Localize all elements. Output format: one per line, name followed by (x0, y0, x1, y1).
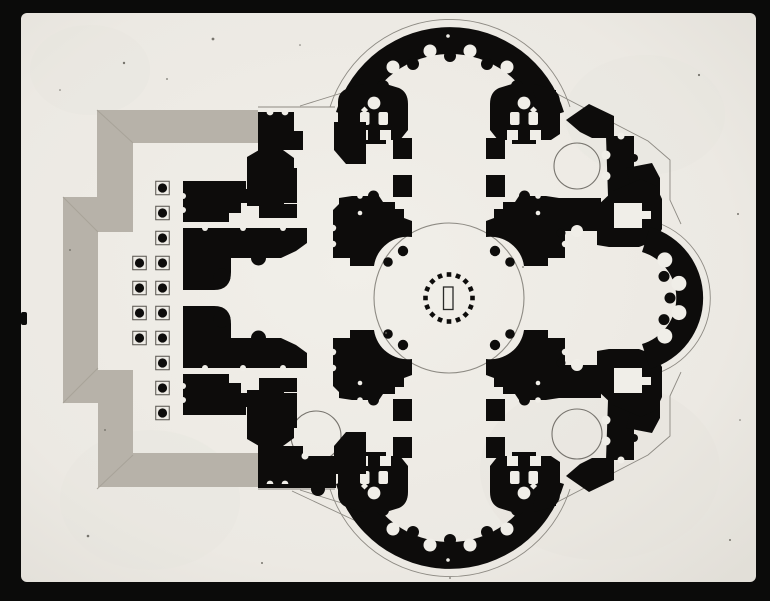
dust-speck (737, 213, 739, 215)
colonnade-column (158, 183, 167, 192)
frame-nick (21, 312, 27, 325)
dust-speck (69, 249, 71, 251)
dust-speck (385, 332, 387, 334)
dust-speck (261, 562, 263, 564)
colonnade-column (135, 333, 144, 342)
colonnade-column (158, 358, 167, 367)
lantern-slide-photo (0, 0, 770, 601)
colonnade-column (158, 333, 167, 342)
dust-speck (166, 78, 168, 80)
colonnade-column (135, 283, 144, 292)
floor-plan-slide (0, 0, 770, 601)
colonnade-column (158, 258, 167, 267)
baldachin-column (447, 272, 452, 277)
dust-speck (739, 419, 741, 421)
dust-speck (299, 44, 301, 46)
dust-speck (59, 89, 61, 91)
dust-speck (104, 429, 106, 431)
colonnade-column (158, 408, 167, 417)
dust-speck (522, 266, 524, 268)
dust-speck (87, 535, 90, 538)
dust-speck (698, 74, 700, 76)
baldachin-column (447, 319, 452, 324)
colonnade-column (135, 258, 144, 267)
dust-speck (449, 577, 451, 579)
baldachin-column (470, 296, 475, 301)
colonnade-column (158, 283, 167, 292)
dust-speck (212, 38, 215, 41)
dust-speck (123, 62, 125, 64)
colonnade-column (158, 308, 167, 317)
colonnade-column (135, 308, 144, 317)
dust-speck (729, 539, 731, 541)
colonnade-column (158, 233, 167, 242)
baldachin-column (423, 296, 428, 301)
colonnade-column (158, 208, 167, 217)
colonnade-column (158, 383, 167, 392)
